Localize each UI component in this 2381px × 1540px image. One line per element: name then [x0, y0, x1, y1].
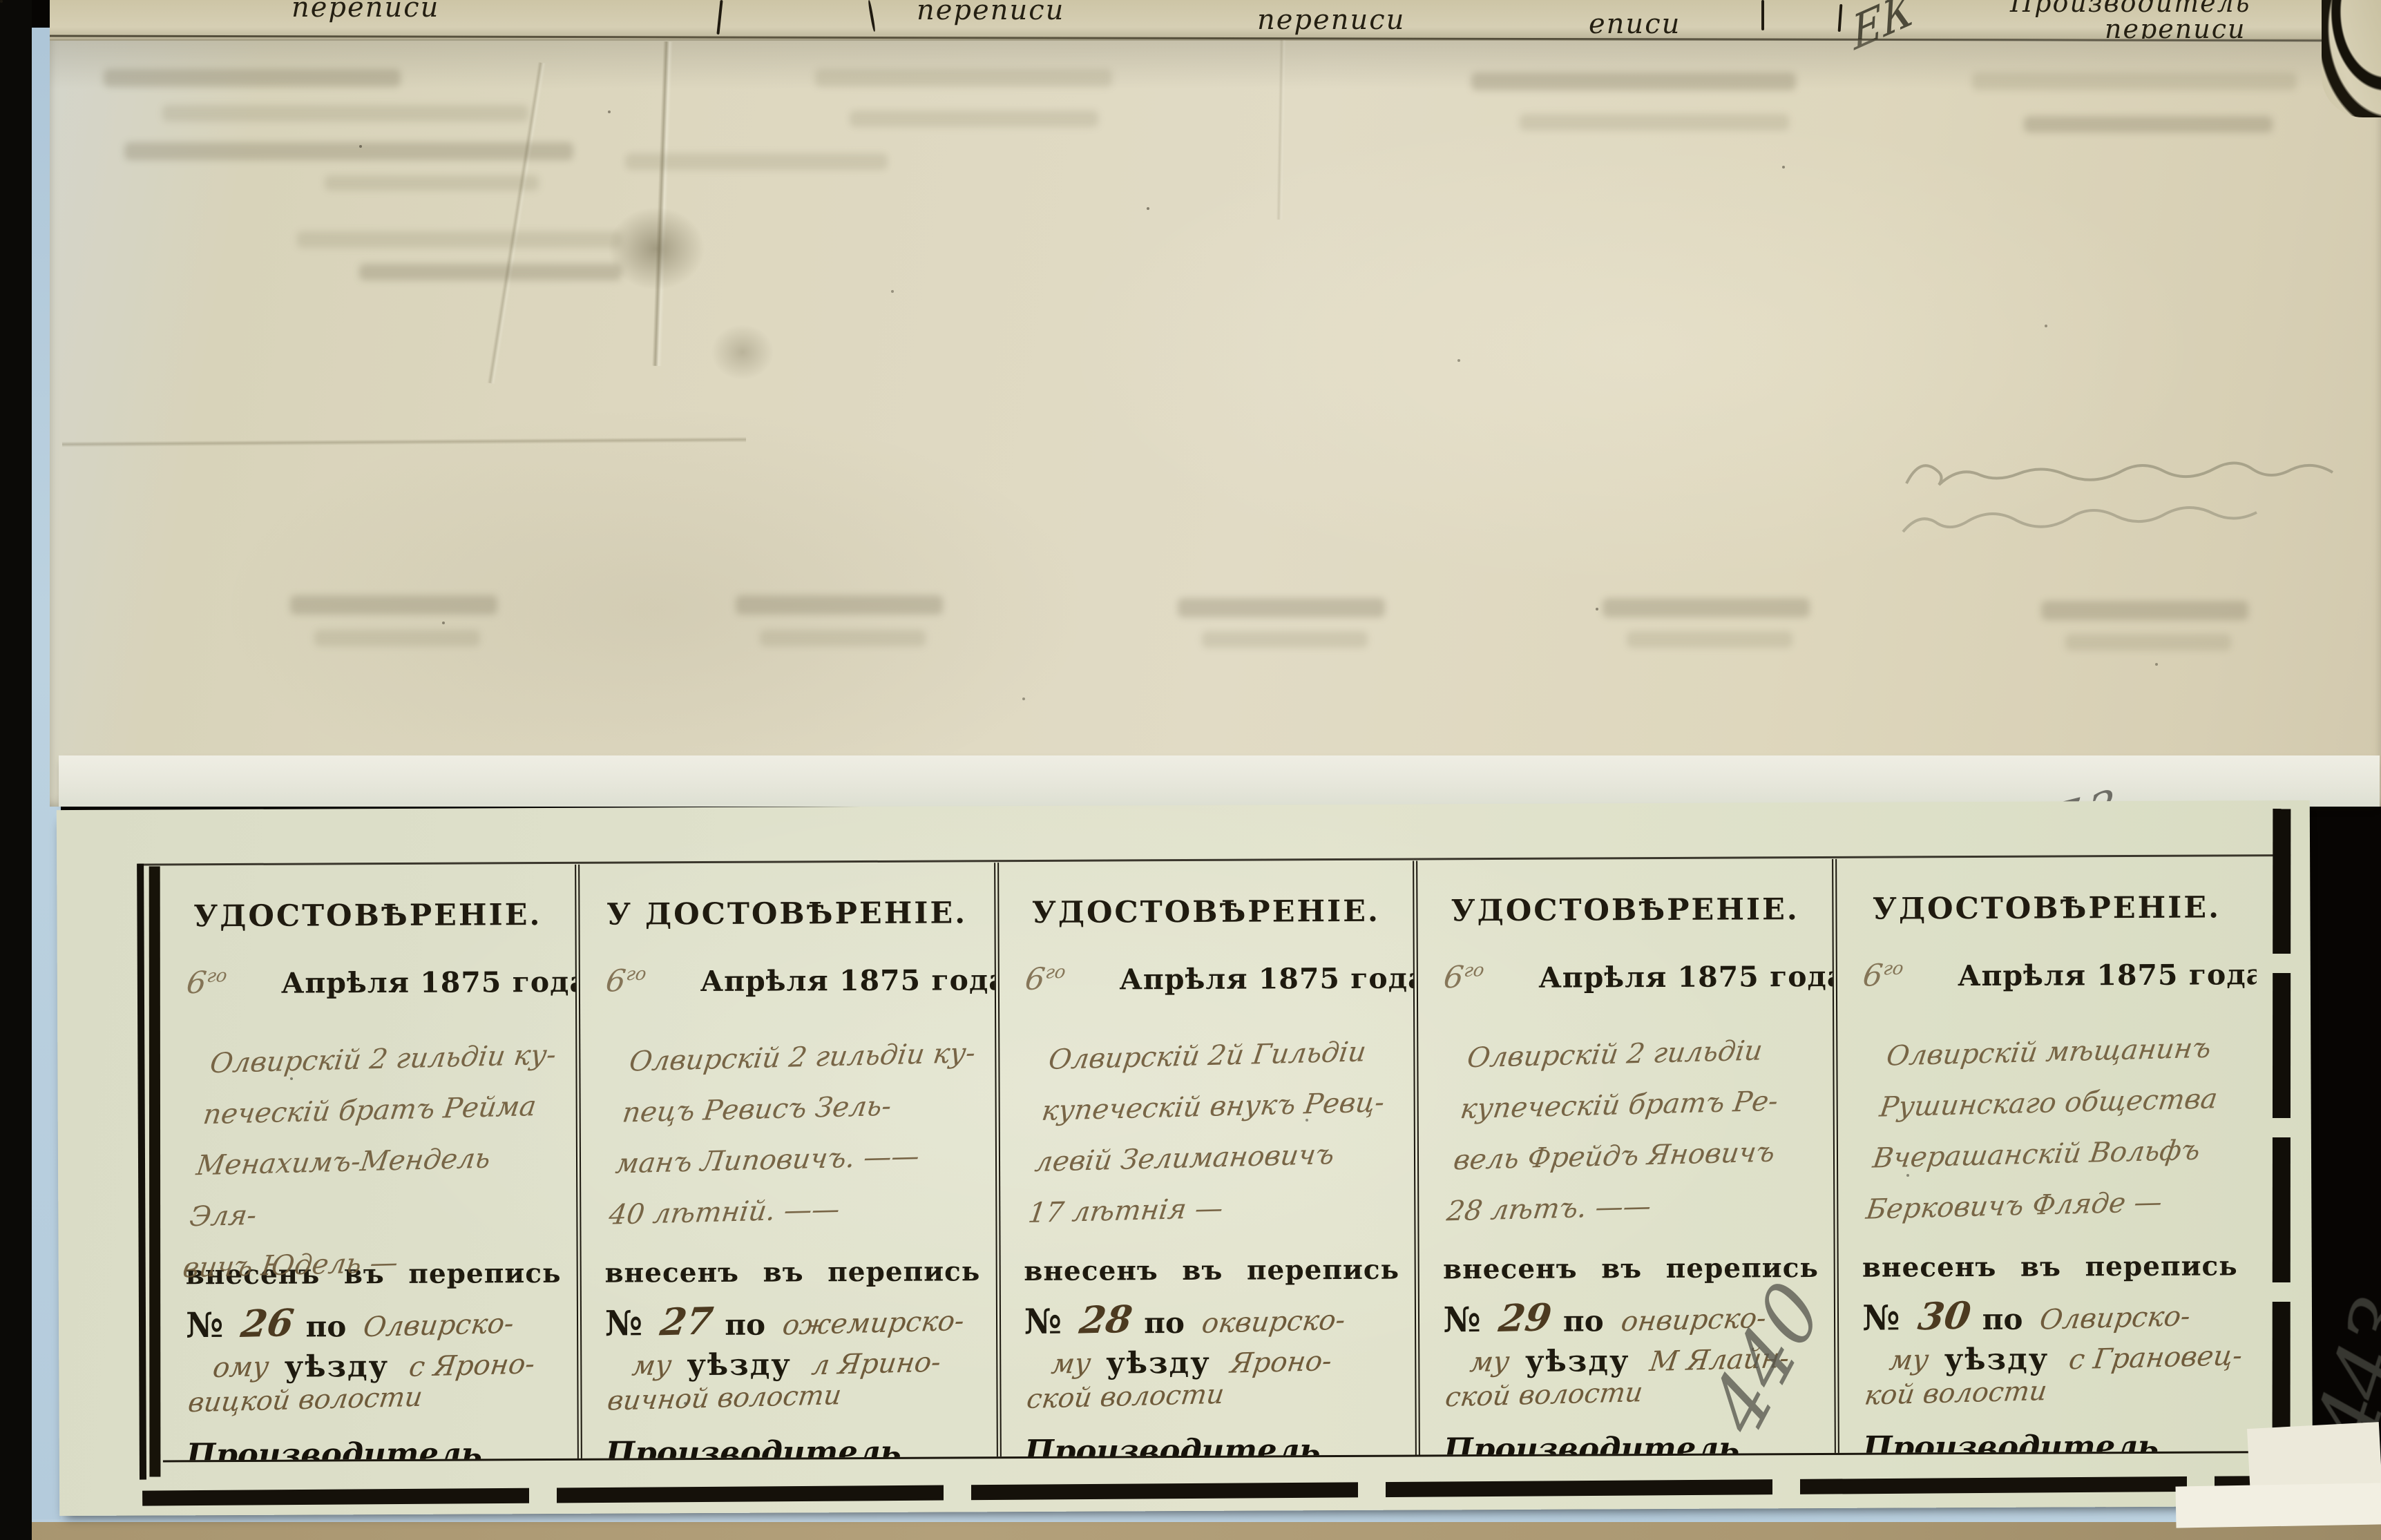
handwritten-line: Берковичъ Фляде —: [1863, 1175, 2243, 1235]
uyezd-label: уѣзду: [1525, 1344, 1630, 1379]
paper-scrap: [2175, 1483, 2381, 1528]
handwritten-line: вель Фрейдъ Яновичъ: [1451, 1126, 1826, 1186]
wrinkle: [711, 325, 774, 380]
uyezd-label: уѣзду: [285, 1349, 390, 1385]
handwritten-day: 6го: [1023, 959, 1125, 997]
printed-date: Апрѣля 1875 года.: [1538, 960, 1839, 994]
po-label: по: [1563, 1304, 1604, 1338]
border-left-rule: [137, 864, 146, 1480]
certificate-title: УДОСТОВѢРЕНІЕ.: [1861, 890, 2233, 926]
handwritten-census-number: 28: [1077, 1297, 1135, 1342]
certificate-panel: У ДОСТОВѢРЕНІЕ. 6го Апрѣля 1875 года. Ол…: [580, 863, 1002, 1459]
handwritten-entry: Олвирскій 2 гильдіи ку- пецъ Ревисъ Зель…: [604, 1027, 1001, 1248]
date-row: 6го Апрѣля 1875 года.: [1022, 961, 1390, 997]
handwritten-census-number: 30: [1915, 1293, 1973, 1338]
border-bottom-rule: [142, 1476, 2271, 1506]
handwritten-volost: Яроно-: [1229, 1345, 1334, 1380]
show-through-text: [104, 69, 401, 87]
archival-scan-page: { "page": { "folio_pencil_number": "773"…: [0, 0, 2381, 1540]
handwritten-line: Олвирскій 2й Гильдіи: [1045, 1025, 1420, 1085]
handwritten-uyezd-suffix: ому: [211, 1351, 271, 1384]
certificate-panels: УДОСТОВѢРЕНІЕ. 6го Апрѣля 1875 года. Олв…: [160, 857, 2259, 1462]
census-number-row: № 30 по Олвирско-: [1862, 1293, 2235, 1338]
show-through-header: [2065, 634, 2231, 651]
printed-date: Апрѣля 1875 года.: [1119, 961, 1420, 996]
handwritten-day: 6го: [184, 963, 286, 1001]
handwritten-line: Олвирскій 2 гильдіи ку-: [207, 1029, 582, 1089]
show-through-header: [1603, 598, 1810, 617]
handwritten-line: вичъ Юдель —: [180, 1233, 555, 1293]
po-label: по: [1144, 1306, 1185, 1340]
show-through-text: [325, 175, 539, 191]
entered-in-census-label: внесенъ въ перепись подъ: [1024, 1254, 1391, 1287]
certificate-panel: УДОСТОВѢРЕНІЕ. 6го Апрѣля 1875 года. Олв…: [999, 861, 1421, 1457]
prev-page-rule: [868, 0, 876, 32]
handwritten-volost: с Грановец-: [2067, 1340, 2244, 1376]
handwritten-entry: Олвирскій мѣщанинъ Рушинскаго общества В…: [1862, 1021, 2259, 1242]
previous-page-edge: переписи переписи переписи еписи Произво…: [50, 0, 2381, 41]
handwritten-line: пецъ Ревисъ Зель-: [619, 1078, 994, 1138]
entered-in-census-label: внесенъ въ перепись подъ: [1443, 1252, 1810, 1285]
census-producer-label: Производитель переписи: [1024, 1432, 1392, 1456]
handwritten-census-number: 29: [1496, 1295, 1554, 1340]
show-through-header: [2041, 601, 2248, 620]
handwritten-volost: с Яроно-: [407, 1348, 537, 1383]
show-through-header: [1178, 598, 1385, 617]
handwritten-uyezd-suffix: му: [1888, 1344, 1931, 1376]
handwritten-line: Вчерашанскій Вольфъ: [1870, 1124, 2250, 1184]
census-number-row: № 26 по Олвирско-: [186, 1300, 553, 1346]
printed-date: Апрѣля 1875 года.: [1958, 958, 2259, 992]
handwritten-line: купеческій внукъ Ревц-: [1038, 1076, 1413, 1136]
show-through-header: [314, 630, 480, 646]
uyezd-label: уѣзду: [1106, 1346, 1211, 1381]
handwritten-line: 40 лѣтній. ——: [606, 1180, 981, 1240]
wrinkle: [608, 207, 705, 290]
handwritten-uyezd: ожемирско-: [781, 1305, 966, 1342]
date-row: 6го Апрѣля 1875 года.: [1442, 959, 1809, 995]
entered-in-census-label: внесенъ въ перепись подъ: [1862, 1250, 2235, 1283]
certificates-sheet: УДОСТОВѢРЕНІЕ. 6го Апрѣля 1875 года. Олв…: [57, 800, 2313, 1516]
show-through-text: [625, 153, 888, 170]
handwritten-line: Рушинскаго общества: [1877, 1072, 2257, 1133]
printed-date: Апрѣля 1875 года.: [281, 965, 582, 1000]
number-sign: №: [186, 1305, 224, 1345]
census-producer-label: Производитель переписи: [606, 1433, 973, 1458]
handwritten-line: манъ Липовичъ. ——: [613, 1129, 988, 1189]
certificate-title: У ДОСТОВѢРЕНІЕ.: [603, 896, 970, 932]
handwritten-volost: л Ярино-: [810, 1347, 942, 1382]
entered-in-census-label: внесенъ въ перепись подъ: [604, 1255, 972, 1289]
handwritten-day: 6го: [1861, 956, 1962, 994]
border-left-rule: [149, 866, 161, 1476]
handwritten-day: 6го: [604, 961, 705, 999]
show-through-header: [760, 630, 926, 646]
certificate-panel: УДОСТОВѢРЕНІЕ. 6го Апрѣля 1875 года. Олв…: [1837, 857, 2259, 1453]
handwritten-census-number: 27: [658, 1298, 716, 1344]
po-label: по: [725, 1308, 765, 1342]
handwritten-line: 17 лѣтнія —: [1024, 1179, 1399, 1239]
certificate-panel: УДОСТОВѢРЕНІЕ. 6го Апрѣля 1875 года. Олв…: [160, 865, 582, 1461]
show-through-text: [162, 105, 528, 122]
handwritten-line: Олвирскій 2 гильдіи: [1464, 1023, 1839, 1084]
border-right-rule: [2273, 809, 2291, 1485]
handwritten-line: печескій братъ Рейма: [200, 1080, 575, 1140]
handwritten-entry: Олвирскій 2й Гильдіи купеческій внукъ Ре…: [1024, 1025, 1420, 1246]
census-number-row: № 27 по ожемирско-: [605, 1298, 973, 1344]
show-through-text: [359, 264, 622, 280]
date-row: 6го Апрѣля 1875 года.: [604, 962, 971, 999]
page-curl: [2322, 0, 2381, 117]
po-label: по: [1982, 1302, 2023, 1336]
certificate-title: УДОСТОВѢРЕНІЕ.: [184, 898, 551, 934]
show-through-text: [297, 231, 622, 248]
blank-verso-sheet: [50, 18, 2381, 807]
show-through-text: [1471, 73, 1796, 90]
handwritten-uyezd-suffix: му: [1049, 1347, 1093, 1380]
handwritten-line: левій Зелимановичъ: [1031, 1127, 1406, 1187]
binding-shadow-left: [0, 0, 32, 1540]
sheet-edge-band: [59, 755, 2380, 807]
prev-page-label: переписи: [291, 0, 439, 23]
prev-page-label: еписи: [1589, 8, 1681, 40]
prev-page-label: переписи: [1257, 4, 1405, 36]
handwritten-line: 28 лѣтъ. ——: [1444, 1177, 1819, 1237]
certificate-title: УДОСТОВѢРЕНІЕ.: [1442, 892, 1809, 928]
printed-date: Апрѣля 1875 года.: [700, 963, 1002, 998]
handwritten-day: 6го: [1442, 958, 1543, 996]
uyezd-label: уѣзду: [687, 1347, 792, 1383]
handwritten-line: Олвирскій 2 гильдіи ку-: [626, 1027, 1001, 1087]
prev-page-producer: переписи: [2105, 14, 2246, 41]
number-sign: №: [1443, 1299, 1481, 1340]
show-through-header: [1202, 631, 1368, 648]
census-producer-label: Производитель переписи: [187, 1435, 554, 1460]
show-through-text: [1972, 73, 2297, 90]
show-through-text: [2024, 116, 2273, 133]
handwritten-census-number: 26: [239, 1300, 297, 1346]
handwritten-line: Менахимъ-Мендель Эля-: [187, 1131, 568, 1243]
date-row: 6го Апрѣля 1875 года.: [1861, 956, 2233, 993]
show-through-header: [290, 595, 497, 615]
pencil-note-illegible: [1900, 442, 2355, 566]
handwritten-uyezd-suffix: му: [1469, 1346, 1512, 1378]
handwritten-uyezd: Олвирско-: [2038, 1300, 2193, 1336]
show-through-text: [850, 110, 1098, 127]
po-label: по: [305, 1309, 346, 1343]
prev-page-rule: [716, 0, 723, 35]
handwritten-uyezd: оквирско-: [1200, 1305, 1347, 1340]
certificate-title: УДОСТОВѢРЕНІЕ.: [1022, 894, 1390, 930]
show-through-header: [736, 595, 943, 615]
prev-page-rule: [1838, 4, 1843, 32]
uyezd-label: уѣзду: [1944, 1342, 2049, 1378]
census-number-row: № 28 по оквирско-: [1024, 1297, 1391, 1342]
number-sign: №: [605, 1302, 643, 1343]
handwritten-uyezd: Олвирско-: [361, 1308, 516, 1344]
paper-specks: [0, 0, 3, 3]
handwritten-line: купеческій братъ Ре-: [1457, 1075, 1833, 1135]
prev-page-rule: [1761, 0, 1764, 30]
date-row: 6го Апрѣля 1875 года.: [184, 964, 552, 1001]
handwritten-uyezd-suffix: му: [630, 1349, 673, 1382]
show-through-text: [124, 142, 573, 160]
census-producer-label: Производитель переписи: [1863, 1427, 2235, 1452]
number-sign: №: [1024, 1301, 1062, 1342]
show-through-text: [1520, 114, 1789, 131]
handwritten-entry: Олвирскій 2 гильдіи ку- печескій братъ Р…: [186, 1029, 582, 1250]
handwritten-entry: Олвирскій 2 гильдіи купеческій братъ Ре-…: [1443, 1023, 1839, 1244]
prev-page-label: переписи: [917, 0, 1064, 26]
show-through-header: [1627, 631, 1792, 648]
handwritten-line: Олвирскій мѣщанинъ: [1884, 1021, 2259, 1082]
show-through-text: [815, 69, 1112, 87]
number-sign: №: [1862, 1297, 1900, 1338]
